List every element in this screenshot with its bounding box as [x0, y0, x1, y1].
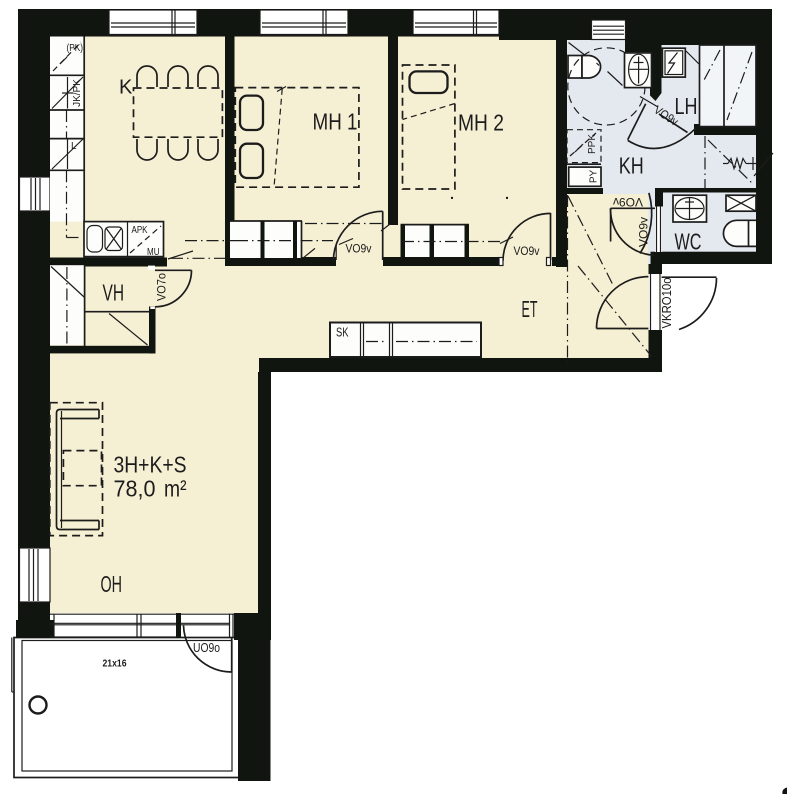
svg-text:MH 1: MH 1 [313, 109, 358, 135]
svg-text:L: L [71, 141, 77, 152]
svg-text:MU: MU [147, 247, 160, 258]
svg-text:VO9v: VO9v [613, 195, 643, 209]
svg-text:ET: ET [522, 296, 538, 322]
svg-text:VO7o: VO7o [155, 273, 169, 301]
svg-text:78,0: 78,0 [114, 476, 156, 502]
svg-text:PPK: PPK [587, 134, 598, 154]
svg-text:MH 2: MH 2 [458, 110, 504, 136]
svg-text:VKRO10o: VKRO10o [660, 277, 674, 328]
svg-text:(PK): (PK) [67, 43, 84, 54]
svg-text:UO9o: UO9o [193, 641, 220, 655]
svg-text:APK: APK [132, 225, 148, 236]
svg-text:VO9v: VO9v [514, 244, 540, 258]
svg-text:JK/PK: JK/PK [72, 79, 83, 107]
svg-text:KH: KH [619, 153, 644, 179]
svg-text:SK: SK [336, 325, 349, 340]
svg-text:21x16: 21x16 [103, 659, 127, 670]
svg-text:m²: m² [164, 476, 187, 502]
svg-text:K: K [119, 77, 133, 99]
svg-text:OH: OH [101, 571, 123, 597]
svg-text:VH: VH [103, 280, 125, 306]
svg-text:VO9v: VO9v [346, 242, 372, 256]
svg-text:PY: PY [589, 170, 600, 184]
svg-text:3H+K+S: 3H+K+S [114, 452, 187, 478]
svg-text:WC: WC [675, 229, 702, 255]
svg-text:VO9v: VO9v [637, 217, 651, 247]
